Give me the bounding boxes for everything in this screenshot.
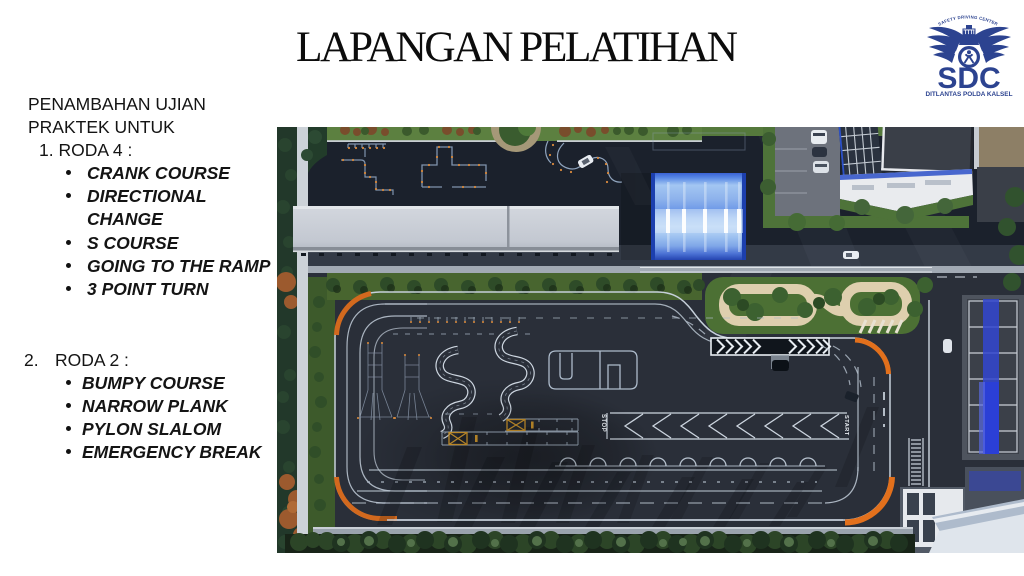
svg-text:START: START (843, 415, 849, 436)
svg-text:DITLANTAS POLDA KALSEL: DITLANTAS POLDA KALSEL (926, 91, 1013, 98)
